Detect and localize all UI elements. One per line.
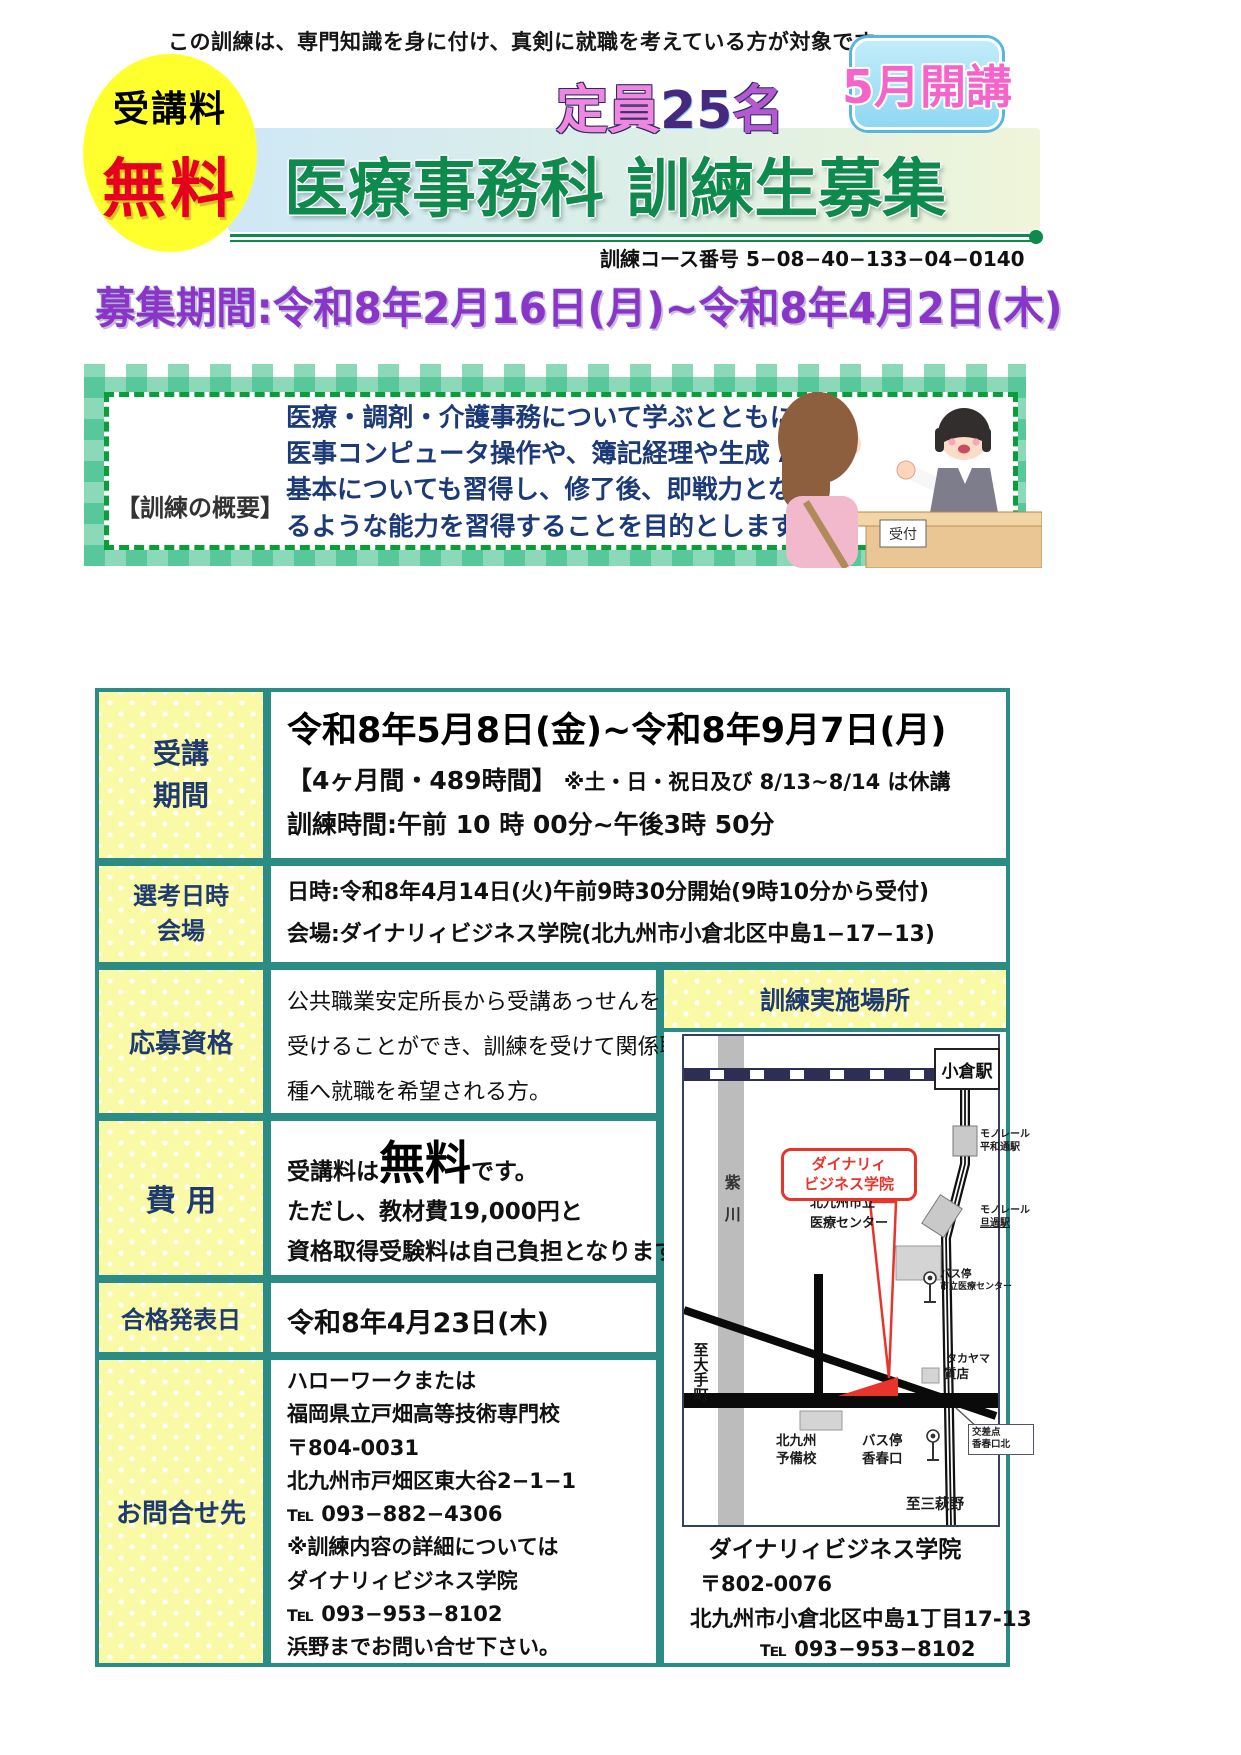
school-street: 北九州市小倉北区中島1丁目17-13 — [664, 1602, 1006, 1633]
cost-suffix: です。 — [471, 1159, 538, 1185]
month-badge: 5月開講 — [852, 38, 1002, 130]
training-hours: 訓練時間:午前 10 時 00分~午後3時 50分 — [287, 805, 996, 841]
reception-sign: 受付 — [889, 527, 917, 543]
row-eligibility-label: 応募資格 — [99, 970, 263, 1113]
label-line: 合格発表日 — [121, 1300, 241, 1335]
label-line: ビジネス学院 — [788, 1174, 910, 1194]
capacity-number: 25 — [660, 81, 732, 141]
map-header-text: 訓練実施場所 — [760, 981, 910, 1017]
label-line: バス停 — [862, 1433, 903, 1451]
row-eligibility-content: 公共職業安定所長から受講あっせんを 受けることができ、訓練を受けて関係職 種へ就… — [271, 970, 656, 1113]
tanga-label: モノレール 旦過駅 — [980, 1204, 1030, 1230]
river-label: 紫川 — [720, 1174, 741, 1238]
school-name: ダイナリィビジネス学院 — [664, 1530, 1006, 1564]
vertical-road — [814, 1274, 823, 1394]
school-address-block: ダイナリィビジネス学院 〒802-0076 北九州市小倉北区中島1丁目17-13… — [664, 1530, 1006, 1661]
school-tel: ℡ 093−953−8102 — [664, 1637, 1006, 1661]
cost-prefix: 受講料は — [287, 1159, 379, 1185]
takayama-label: タカヤマ 質店 — [946, 1352, 990, 1383]
cheek — [948, 438, 955, 445]
overview-label: 【訓練の概要】 — [116, 488, 284, 523]
contact-line: ハローワークまたは — [287, 1365, 646, 1398]
receptionist-hair-side — [935, 428, 944, 452]
fee-label: 受講料 — [83, 80, 257, 132]
school-postal: 〒802-0076 — [664, 1568, 1006, 1598]
label-line: 市立医療センター — [940, 1282, 1012, 1294]
station-marker-heiwadori — [953, 1126, 977, 1156]
contact-line: ダイナリィビジネス学院 — [287, 1565, 646, 1598]
fee-circle: 受講料 無料 — [83, 54, 257, 252]
row-selection-content: 日時:令和8年4月14日(火)午前9時30分開始(9時10分から受付) 会場:ダ… — [271, 866, 1006, 962]
bus-kawaraguchi-label: バス停 香春口 — [862, 1433, 903, 1468]
announce-date: 令和8年4月23日(木) — [287, 1301, 646, 1340]
label-line: 質店 — [944, 1366, 990, 1382]
line-end-dot — [1029, 230, 1043, 244]
label-line: 旦過駅 — [980, 1217, 1030, 1230]
recruitment-period: 募集期間:令和8年2月16日(月)~令和8年4月2日(木) — [95, 274, 1063, 336]
underline-top — [230, 234, 1032, 237]
label-line: 香春口 — [862, 1451, 903, 1469]
label-line: 医療センター — [810, 1214, 888, 1234]
label-line: バス停 — [940, 1268, 1012, 1282]
label-line: モノレール — [980, 1204, 1030, 1217]
eligibility-line: 種へ就職を希望される方。 — [287, 1070, 646, 1115]
eligibility-line: 公共職業安定所長から受講あっせんを — [287, 980, 646, 1025]
intersection-box: 交差点 香春口北 — [968, 1424, 1034, 1455]
tagline: この訓練は、専門知識を身に付け、真剣に就職を考えている方が対象です。 — [168, 26, 895, 56]
bus-medical-label: バス停 市立医療センター — [940, 1268, 1012, 1293]
flyer: この訓練は、専門知識を身に付け、真剣に就職を考えている方が対象です。 医療事務科… — [0, 0, 1241, 1755]
heiwadori-label: モノレール 平和通駅 — [980, 1128, 1030, 1154]
row-cost-label: 費 用 — [99, 1121, 263, 1275]
course-number: 訓練コース番号 5−08−40−133−04−0140 — [600, 243, 1008, 272]
fee-free-text: 無料 — [83, 138, 257, 230]
jr-line — [684, 1068, 946, 1081]
row-cost-content: 受講料は無料です。 ただし、教材費19,000円と 資格取得受験料は自己負担とな… — [271, 1121, 656, 1275]
label-line: 選考日時 — [133, 879, 229, 914]
info-table: 受講 期間 令和8年5月8日(金)~令和8年9月7日(月) 【4ヶ月間・489時… — [95, 688, 1010, 1667]
row-period-label: 受講 期間 — [99, 692, 263, 858]
cost-free-word: 無料 — [379, 1136, 471, 1190]
row-announce-content: 令和8年4月23日(木) — [271, 1283, 656, 1352]
label-line: お問合せ先 — [116, 1493, 246, 1530]
training-dates: 令和8年5月8日(金)~令和8年9月7日(月) — [287, 702, 996, 753]
holiday-note: ※土・日・祝日及び 8/13~8/14 は休講 — [557, 770, 951, 794]
map-cell: 小倉駅 紫川 モノレール 平和通駅 モノレール 旦過駅 北九州市立 医療センター… — [664, 1032, 1006, 1663]
bus-stop-icon — [927, 1430, 939, 1460]
label-line: 交差点 — [972, 1427, 1030, 1439]
capacity-suffix: 名 — [732, 81, 784, 141]
contact-line: ※訓練内容の詳細については — [287, 1531, 646, 1564]
label-line: 会場 — [157, 914, 205, 949]
map-header: 訓練実施場所 — [664, 970, 1006, 1028]
receptionist-hand — [897, 461, 915, 479]
selection-venue: 会場:ダイナリィビジネス学院(北九州市小倉北区中島1−17−13) — [287, 914, 996, 956]
eligibility-line: 受けることができ、訓練を受けて関係職 — [287, 1025, 646, 1070]
reception-illustration: 受付 — [752, 370, 1042, 568]
capacity-word: 定員 — [556, 81, 660, 141]
mouth — [958, 445, 970, 454]
bus-stop-icon — [924, 1272, 936, 1302]
underline-bottom — [230, 240, 1032, 242]
cost-note: ただし、教材費19,000円と — [287, 1193, 646, 1233]
to-mihagino-label: 至三萩野 — [906, 1496, 964, 1515]
label-line: 香春口北 — [972, 1439, 1030, 1451]
contact-line: ℡ 093−882−4306 — [287, 1498, 646, 1531]
selection-datetime: 日時:令和8年4月14日(火)午前9時30分開始(9時10分から受付) — [287, 872, 996, 914]
label-line: タカヤマ — [946, 1352, 990, 1366]
label-line: 期間 — [153, 775, 209, 817]
label-line: 平和通駅 — [980, 1141, 1030, 1154]
row-contact-label: お問合せ先 — [99, 1360, 263, 1663]
to-otemachi-label: 至大手町 — [690, 1342, 710, 1402]
school-bubble: ダイナリィ ビジネス学院 — [781, 1148, 917, 1201]
row-contact-content: ハローワークまたは 福岡県立戸畑高等技術専門校 〒804-0031 北九州市戸畑… — [271, 1360, 656, 1663]
row-selection-label: 選考日時 会場 — [99, 866, 263, 962]
takayama-building — [922, 1368, 939, 1383]
contact-line: 北九州市戸畑区東大谷2−1−1 — [287, 1465, 646, 1498]
label-line: 費 用 — [146, 1176, 216, 1220]
yobiko-label: 北九州 予備校 — [776, 1433, 817, 1468]
contact-line: 〒804-0031 — [287, 1432, 646, 1465]
label-line: モノレール — [980, 1128, 1030, 1141]
cheek — [972, 438, 979, 445]
cost-note: 資格取得受験料は自己負担となります。 — [287, 1233, 646, 1273]
row-period-content: 令和8年5月8日(金)~令和8年9月7日(月) 【4ヶ月間・489時間】 ※土・… — [271, 692, 1006, 858]
contact-line: 福岡県立戸畑高等技術専門校 — [287, 1398, 646, 1431]
label-line: 北九州 — [776, 1433, 817, 1451]
label-line: ダイナリィ — [788, 1154, 910, 1174]
receptionist-hair-side — [982, 428, 991, 452]
contact-line: ℡ 093−953−8102 — [287, 1598, 646, 1631]
title-underline — [230, 234, 1032, 242]
label-line: 応募資格 — [129, 1023, 233, 1060]
contact-line: 浜野までお問い合せ下さい。 — [287, 1631, 646, 1664]
access-map: 小倉駅 紫川 モノレール 平和通駅 モノレール 旦過駅 北九州市立 医療センター… — [682, 1034, 1000, 1527]
kokura-station-box: 小倉駅 — [934, 1048, 1000, 1090]
row-announce-label: 合格発表日 — [99, 1283, 263, 1352]
capacity-badge: 定員25名 — [556, 68, 784, 143]
page-title: 医療事務科 訓練生募集 — [284, 138, 946, 230]
label-line: 予備校 — [776, 1451, 817, 1469]
label-line: 受講 — [153, 733, 209, 775]
yobiko-building — [800, 1411, 842, 1430]
training-duration: 【4ヶ月間・489時間】 — [287, 766, 557, 795]
